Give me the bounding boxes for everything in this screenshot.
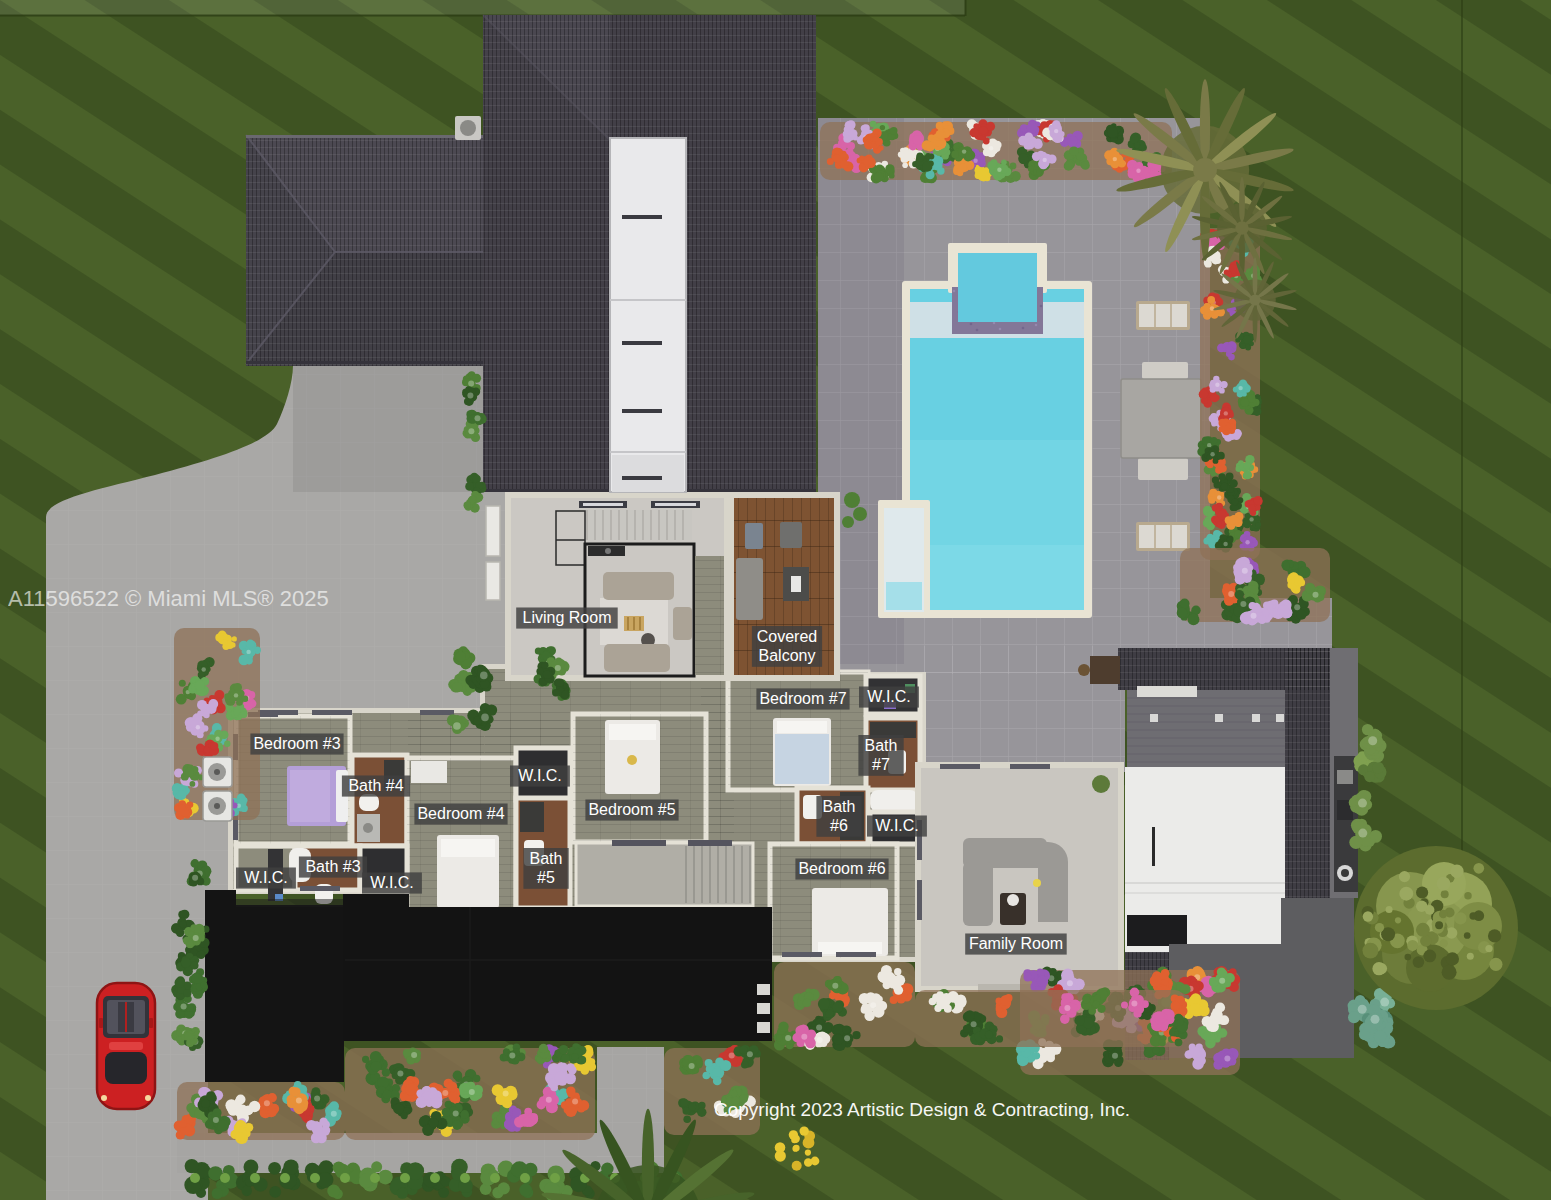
svg-text:W.I.C.: W.I.C.: [867, 688, 911, 705]
svg-text:Bedroom #5: Bedroom #5: [588, 801, 675, 818]
svg-text:Bath: Bath: [530, 850, 563, 867]
svg-text:Bath #3: Bath #3: [305, 858, 360, 875]
svg-text:Bedroom #4: Bedroom #4: [417, 805, 504, 822]
svg-text:Copyright 2023 Artistic Design: Copyright 2023 Artistic Design & Contrac…: [714, 1099, 1130, 1120]
svg-text:Bath #4: Bath #4: [348, 777, 403, 794]
svg-text:A11596522 © Miami MLS® 2025: A11596522 © Miami MLS® 2025: [8, 586, 329, 611]
svg-text:Bath: Bath: [823, 798, 856, 815]
svg-text:#5: #5: [537, 869, 555, 886]
svg-text:Balcony: Balcony: [759, 647, 816, 664]
svg-text:Bedroom #3: Bedroom #3: [253, 735, 340, 752]
svg-text:W.I.C.: W.I.C.: [875, 817, 919, 834]
svg-text:Living Room: Living Room: [523, 609, 612, 626]
svg-text:Family Room: Family Room: [969, 935, 1063, 952]
svg-text:Bath: Bath: [865, 737, 898, 754]
svg-text:#7: #7: [872, 756, 890, 773]
svg-text:#6: #6: [830, 817, 848, 834]
svg-text:W.I.C.: W.I.C.: [518, 767, 562, 784]
svg-text:W.I.C.: W.I.C.: [370, 874, 414, 891]
svg-text:Covered: Covered: [757, 628, 817, 645]
svg-text:Bedroom #7: Bedroom #7: [759, 690, 846, 707]
svg-text:W.I.C.: W.I.C.: [244, 869, 288, 886]
svg-text:Bedroom #6: Bedroom #6: [798, 860, 885, 877]
